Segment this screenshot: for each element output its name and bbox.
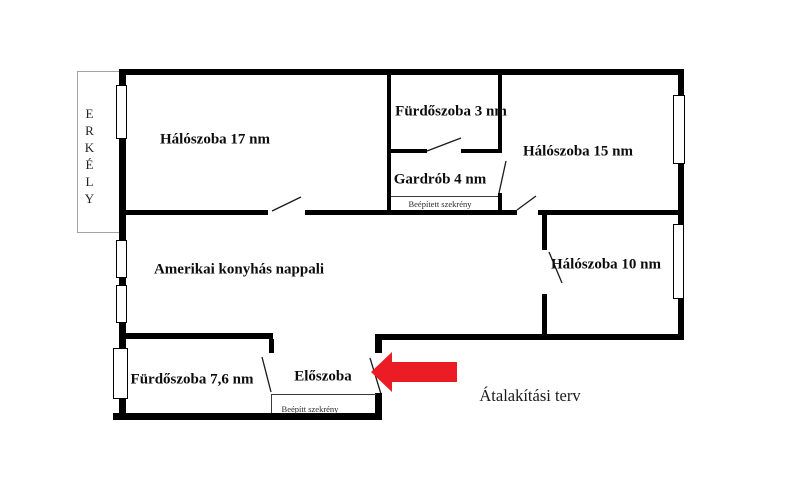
floor-plan: ERKÉLY Hálószoba 17 xyxy=(0,0,800,479)
balcony-label: ERKÉLY xyxy=(81,106,97,206)
door-leaf xyxy=(370,358,381,394)
room-label-wardrobe-4: Gardrób 4 nm xyxy=(394,172,487,189)
window xyxy=(116,285,127,323)
builtin-wardrobe-outline xyxy=(271,394,376,395)
window xyxy=(116,240,127,278)
builtin-wardrobe-label: Beépítt szekrény xyxy=(282,404,339,414)
wall-interior xyxy=(389,149,427,153)
wall-interior xyxy=(498,193,502,210)
room-label-living-kitchen: Amerikai konyhás nappali xyxy=(154,262,324,279)
wall-interior xyxy=(269,339,274,353)
wall-exterior-top xyxy=(119,69,684,75)
wall-exterior-bottom-right xyxy=(375,334,684,340)
window xyxy=(113,348,128,399)
wall-entry-side-upper xyxy=(375,340,382,353)
room-label-bathroom-7-6: Fürdőszoba 7,6 nm xyxy=(131,372,254,389)
red-arrow-icon xyxy=(371,352,457,392)
room-label-bedroom-10: Hálószoba 10 nm xyxy=(551,257,661,274)
wall-interior xyxy=(542,294,547,338)
door-leaf xyxy=(262,357,271,392)
room-label-hallway: Előszoba xyxy=(294,369,352,386)
wall-exterior-bottom-left xyxy=(113,413,382,420)
wall-interior xyxy=(305,210,517,215)
window xyxy=(116,85,127,139)
room-label-bedroom-15: Hálószoba 15 nm xyxy=(523,144,633,161)
builtin-wardrobe-outline xyxy=(391,196,498,197)
builtin-wardrobe-label: Beépített szekrény xyxy=(408,199,471,209)
door-leaf xyxy=(499,161,506,193)
door-leaf xyxy=(517,196,536,210)
wall-entry-side-lower xyxy=(375,393,382,415)
door-leaf xyxy=(272,197,301,211)
window xyxy=(673,95,685,164)
wall-interior xyxy=(387,75,391,210)
wall-interior xyxy=(122,333,273,339)
wall-interior xyxy=(461,149,499,153)
wall-interior xyxy=(542,215,547,250)
room-label-bedroom-17: Hálószoba 17 nm xyxy=(160,132,270,149)
door-leaf xyxy=(427,138,461,151)
window xyxy=(673,224,684,299)
plan-title: Átalakítási terv xyxy=(479,386,580,406)
wall-interior xyxy=(538,210,684,215)
builtin-wardrobe-outline xyxy=(271,394,272,413)
wall-interior xyxy=(122,210,268,215)
room-label-bathroom-3: Fürdőszoba 3 nm xyxy=(395,104,507,121)
